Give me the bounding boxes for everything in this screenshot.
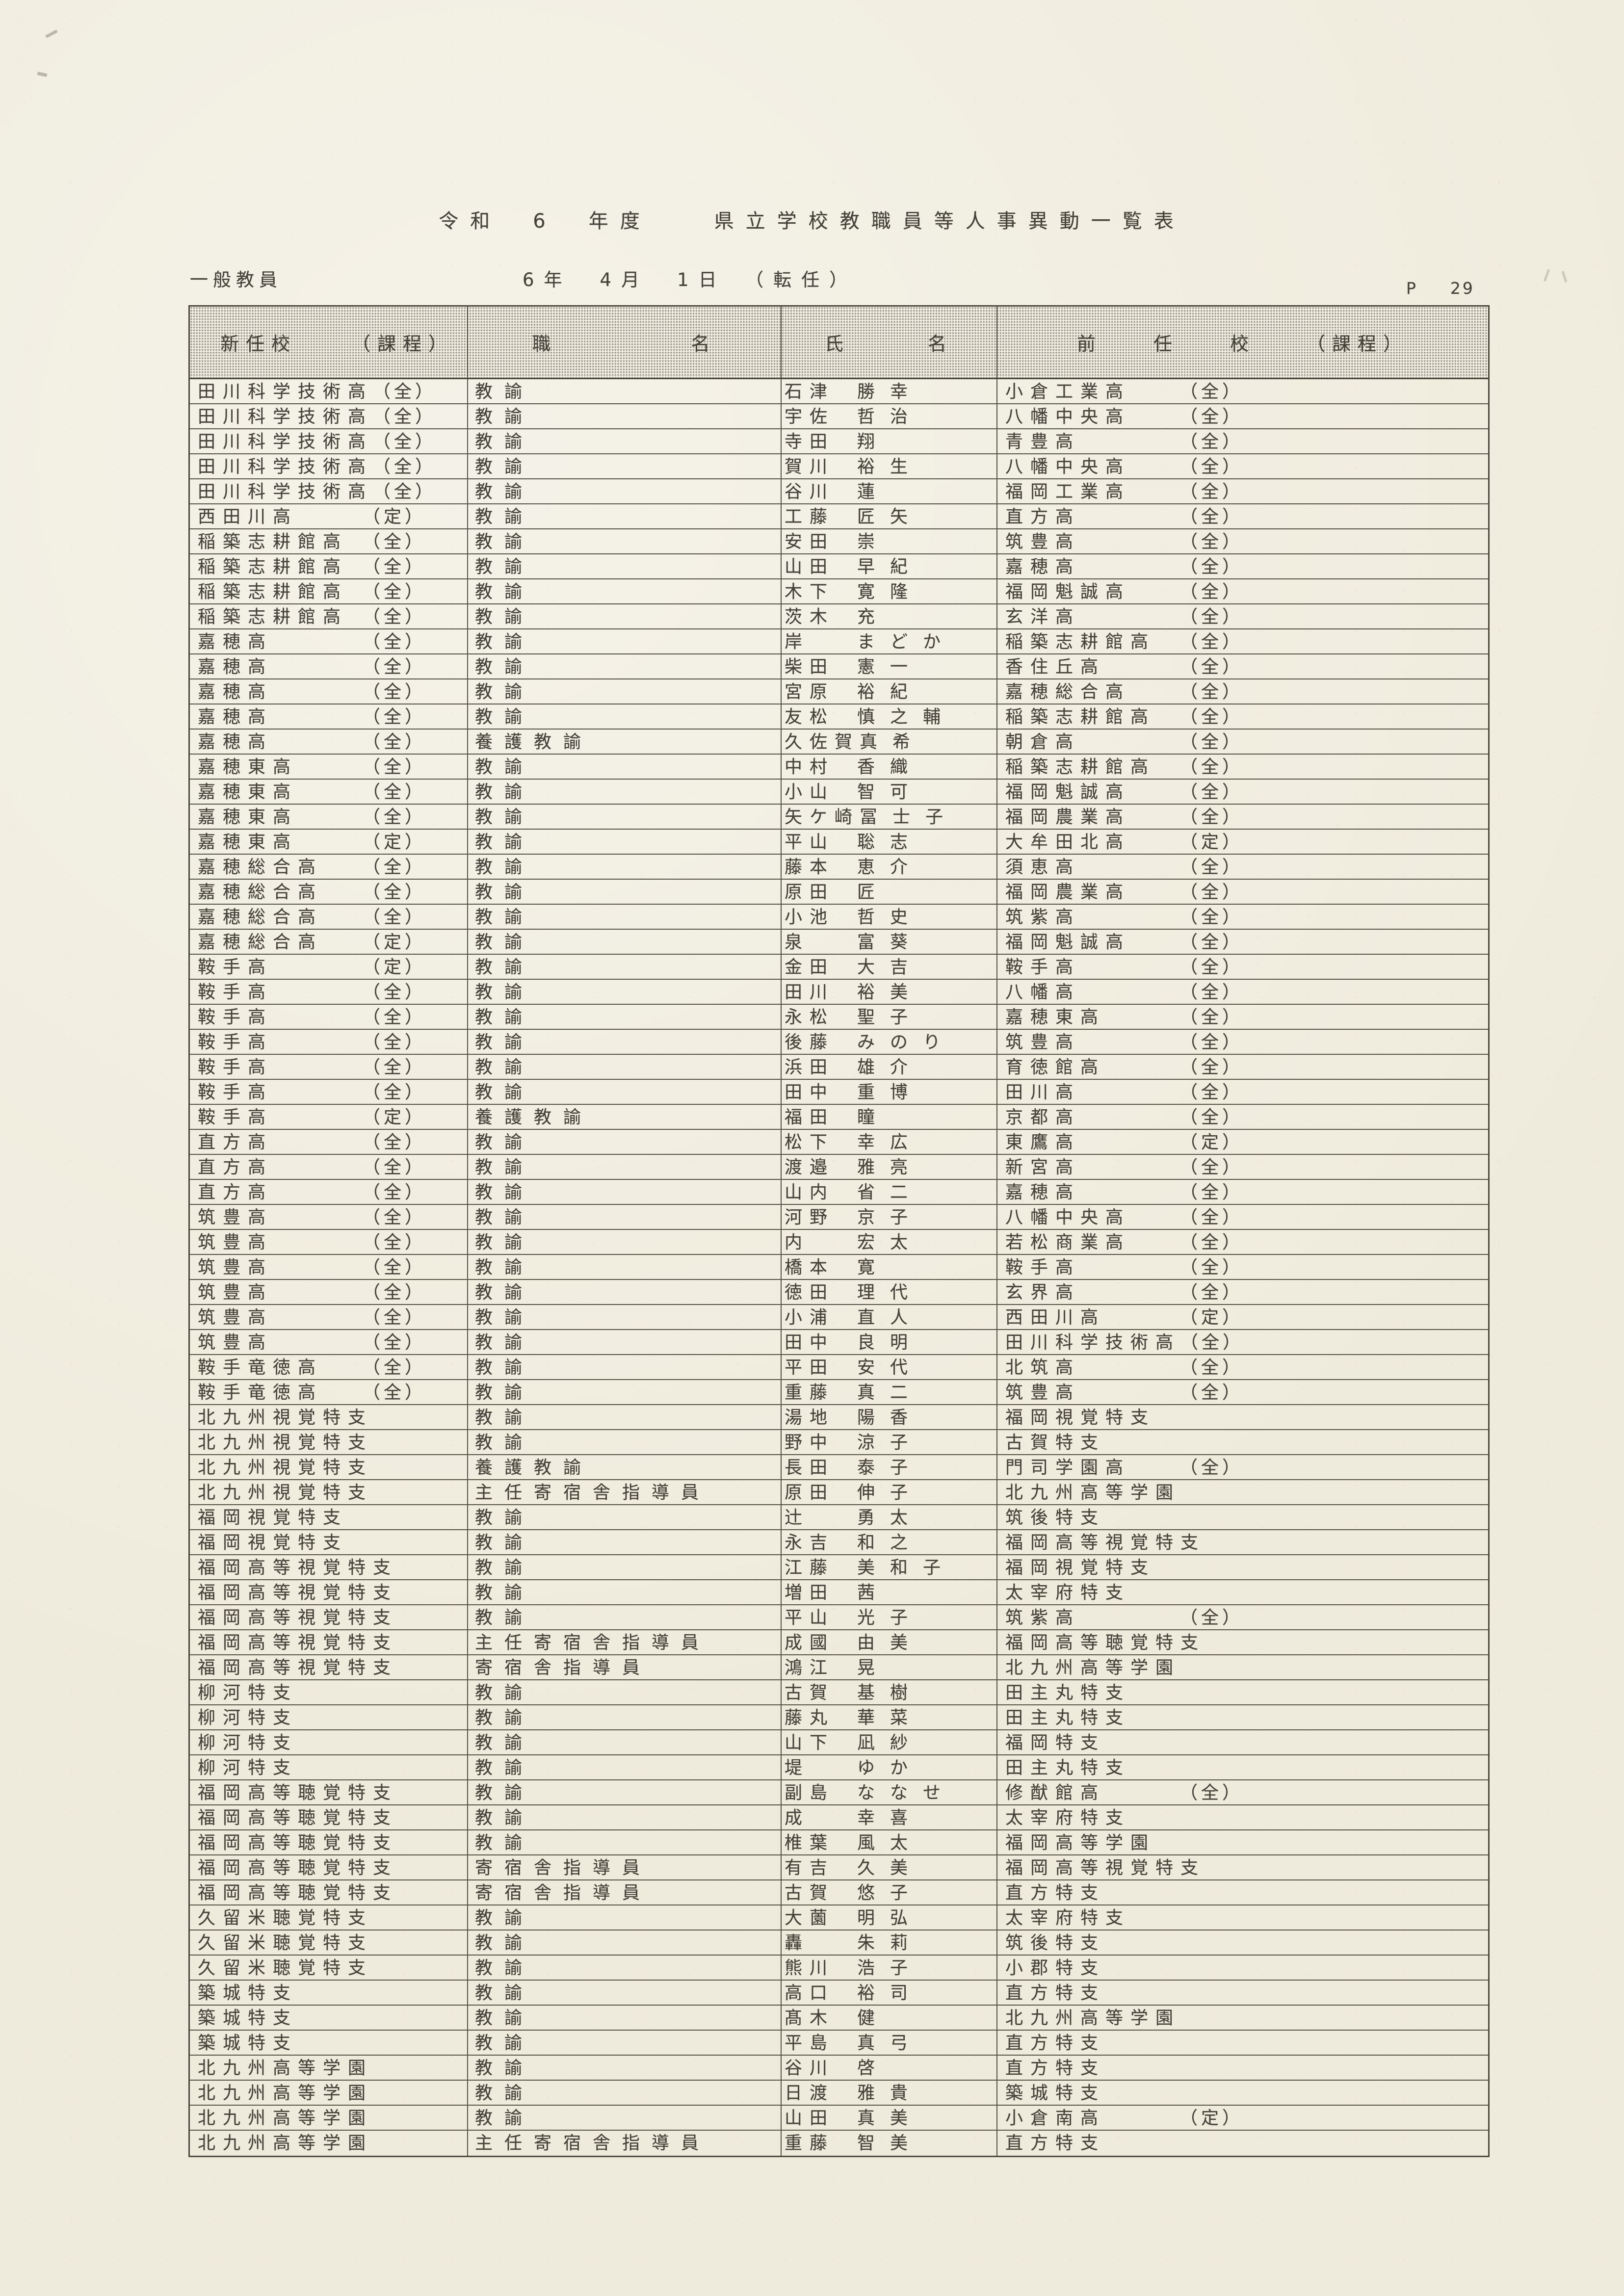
cell-position: 教諭 — [468, 1255, 782, 1280]
cell-prev-school: 福岡高等聴覚特支 — [997, 1630, 1488, 1655]
cell-name: 古賀基樹 — [782, 1680, 997, 1705]
cell-prev-school: 筑後特支 — [997, 1931, 1488, 1956]
prev-school-course: （全） — [1180, 955, 1243, 980]
name-family: 山下 — [785, 1730, 857, 1755]
prev-school-course: （全） — [1180, 529, 1243, 554]
new-school-text: 北九州視覚特支 — [198, 1405, 373, 1430]
prev-school-course: （全） — [1180, 1180, 1243, 1205]
name-family: 小山 — [785, 780, 857, 805]
prev-school-text: 筑紫高 — [1005, 1605, 1180, 1630]
cell-new-school: 福岡高等聴覚特支 — [190, 1780, 468, 1805]
name-given: 茜 — [857, 1580, 890, 1605]
new-school-text: 築城特支 — [198, 2006, 363, 2031]
prev-school-text: 太宰府特支 — [1005, 1580, 1180, 1605]
page-title: 令和 6 年度 県立学校教職員等人事異動一覧表 — [0, 205, 1624, 234]
cell-new-school: 嘉穂東高（定） — [190, 830, 468, 855]
header-name: 氏 名 — [782, 307, 997, 378]
new-school-text: 嘉穂東高 — [198, 805, 363, 830]
name-given: 直人 — [857, 1305, 923, 1330]
prev-school-course: （全） — [1180, 679, 1243, 704]
table-row: 嘉穂東高（全）教諭中村香織稲築志耕館高（全） — [190, 755, 1488, 780]
cell-position: 教諭 — [468, 780, 782, 805]
prev-school-text: 北九州高等学園 — [1005, 1480, 1180, 1505]
new-school-text: 直方高 — [198, 1180, 363, 1205]
name-family: 湯地 — [785, 1405, 857, 1430]
header-name-char1: 氏 — [825, 329, 850, 356]
prev-school-text: 門司学園高 — [1005, 1455, 1180, 1480]
cell-position: 教諭 — [468, 2106, 782, 2131]
cell-new-school: 稲築志耕館高（全） — [190, 554, 468, 579]
new-school-text: 田川科学技術高 — [198, 379, 373, 404]
cell-new-school: 柳河特支 — [190, 1730, 468, 1755]
prev-school-text: 東鷹高 — [1005, 1130, 1180, 1155]
cell-prev-school: 田川科学技術高（全） — [997, 1330, 1488, 1355]
cell-prev-school: 福岡視覚特支 — [997, 1405, 1488, 1430]
prev-school-text: 新宮高 — [1005, 1155, 1180, 1180]
new-school-text: 筑豊高 — [198, 1330, 363, 1355]
cell-name: 古賀悠子 — [782, 1880, 997, 1905]
cell-name: 谷川蓮 — [782, 479, 997, 504]
table-row: 嘉穂総合高（全）教諭小池哲史筑紫高（全） — [190, 905, 1488, 930]
prev-school-course: （全） — [1180, 429, 1243, 454]
new-school-text: 久留米聴覚特支 — [198, 1956, 373, 1981]
name-given: まどか — [857, 629, 956, 654]
name-family: 松下 — [785, 1130, 857, 1155]
cell-name: 原田伸子 — [782, 1480, 997, 1505]
cell-position: 教諭 — [468, 2006, 782, 2031]
cell-prev-school: 嘉穂高（全） — [997, 554, 1488, 579]
cell-position: 教諭 — [468, 2031, 782, 2056]
name-family: 平山 — [785, 1605, 857, 1630]
table-row: 福岡高等視覚特支教諭平山光子筑紫高（全） — [190, 1605, 1488, 1630]
cell-prev-school: 田主丸特支 — [997, 1705, 1488, 1730]
name-given: 明弘 — [857, 1905, 923, 1931]
prev-school-text: 鞍手高 — [1005, 955, 1180, 980]
table-row: 鞍手高（全）教諭永松聖子嘉穂東高（全） — [190, 1005, 1488, 1030]
prev-school-text: 稲築志耕館高 — [1005, 704, 1180, 730]
prev-school-text: 田川高 — [1005, 1080, 1180, 1105]
prev-school-text: 嘉穂総合高 — [1005, 679, 1180, 704]
name-family: 副島 — [785, 1780, 857, 1805]
prev-school-text: 筑豊高 — [1005, 529, 1180, 554]
cell-new-school: 筑豊高（全） — [190, 1230, 468, 1255]
cell-prev-school: 田主丸特支 — [997, 1755, 1488, 1780]
cell-name: 宮原裕紀 — [782, 679, 997, 704]
cell-position: 養護教諭 — [468, 730, 782, 755]
prev-school-text: 嘉穂高 — [1005, 554, 1180, 579]
prev-school-text: 北九州高等学園 — [1005, 1655, 1180, 1680]
cell-position: 教諭 — [468, 1505, 782, 1530]
cell-name: 徳田理代 — [782, 1280, 997, 1305]
new-school-course: （全） — [363, 755, 426, 780]
new-school-text: 田川科学技術高 — [198, 454, 373, 479]
prev-school-text: 筑後特支 — [1005, 1505, 1180, 1530]
name-family: 永吉 — [785, 1530, 857, 1555]
name-given: 聖子 — [857, 1005, 923, 1030]
cell-name: 平山聡志 — [782, 830, 997, 855]
new-school-course: （全） — [363, 1080, 426, 1105]
new-school-text: 福岡高等聴覚特支 — [198, 1880, 398, 1905]
cell-prev-school: 古賀特支 — [997, 1430, 1488, 1455]
name-family: 田中 — [785, 1080, 857, 1105]
new-school-course: （全） — [363, 554, 426, 579]
cell-prev-school: 八幡中央高（全） — [997, 454, 1488, 479]
cell-new-school: 福岡高等視覚特支 — [190, 1655, 468, 1680]
cell-new-school: 嘉穂高（全） — [190, 704, 468, 730]
prev-school-text: 福岡魁誠高 — [1005, 930, 1180, 955]
prev-school-course: （全） — [1180, 629, 1243, 654]
cell-new-school: 久留米聴覚特支 — [190, 1905, 468, 1931]
new-school-course: （全） — [373, 379, 436, 404]
cell-new-school: 筑豊高（全） — [190, 1205, 468, 1230]
header-new-school-label: 新任校 — [220, 329, 297, 356]
prev-school-text: 香住丘高 — [1005, 654, 1180, 679]
cell-new-school: 鞍手竜徳高（全） — [190, 1355, 468, 1380]
cell-new-school: 福岡高等聴覚特支 — [190, 1855, 468, 1880]
prev-school-course: （全） — [1180, 880, 1243, 905]
cell-name: 藤本恵介 — [782, 855, 997, 880]
cell-new-school: 西田川高（定） — [190, 504, 468, 529]
prev-school-course: （全） — [1180, 504, 1243, 529]
prev-school-text: 嘉穂高 — [1005, 1180, 1180, 1205]
name-family: 田中 — [785, 1330, 857, 1355]
new-school-course: （全） — [363, 780, 426, 805]
table-row: 稲築志耕館高（全）教諭茨木充玄洋高（全） — [190, 604, 1488, 629]
prev-school-course: （定） — [1180, 1130, 1243, 1155]
cell-new-school: 築城特支 — [190, 2031, 468, 2056]
cell-prev-school: 直方高（全） — [997, 504, 1488, 529]
header-name-char2: 名 — [928, 329, 953, 356]
table-row: 嘉穂高（全）養護教諭久佐賀真希朝倉高（全） — [190, 730, 1488, 755]
prev-school-text: 古賀特支 — [1005, 1430, 1180, 1455]
new-school-text: 築城特支 — [198, 2031, 363, 2056]
name-given: 真弓 — [857, 2031, 923, 2056]
prev-school-course: （全） — [1180, 604, 1243, 629]
new-school-text: 筑豊高 — [198, 1255, 363, 1280]
cell-new-school: 嘉穂総合高（全） — [190, 905, 468, 930]
new-school-course: （全） — [363, 1280, 426, 1305]
name-given: 勝幸 — [857, 379, 923, 404]
cell-name: 矢ケ崎冨士子 — [782, 805, 997, 830]
cell-new-school: 稲築志耕館高（全） — [190, 579, 468, 604]
table-row: 鞍手高（全）教諭後藤みのり筑豊高（全） — [190, 1030, 1488, 1055]
new-school-text: 嘉穂高 — [198, 704, 363, 730]
cell-new-school: 鞍手高（全） — [190, 1030, 468, 1055]
prev-school-text: 玄界高 — [1005, 1280, 1180, 1305]
name-given: 泰子 — [857, 1455, 923, 1480]
cell-position: 教諭 — [468, 1230, 782, 1255]
cell-new-school: 筑豊高（全） — [190, 1330, 468, 1355]
header-prev-school-course: （課程） — [1307, 329, 1409, 356]
header-position-char2: 名 — [691, 329, 717, 356]
new-school-course: （全） — [363, 704, 426, 730]
name-given: 風太 — [857, 1830, 923, 1855]
scan-artifact — [1561, 271, 1567, 283]
new-school-course: （全） — [363, 730, 426, 755]
table-row: 北九州高等学園教諭山田真美小倉南高（定） — [190, 2106, 1488, 2131]
new-school-text: 西田川高 — [198, 504, 363, 529]
name-given: 早紀 — [857, 554, 923, 579]
name-given: 寛 — [857, 1255, 890, 1280]
name-given: 真希 — [860, 730, 925, 755]
new-school-text: 嘉穂高 — [198, 629, 363, 654]
new-school-text: 鞍手高 — [198, 1080, 363, 1105]
name-given: 良明 — [857, 1330, 923, 1355]
table-row: 福岡高等視覚特支寄宿舎指導員鴻江晃北九州高等学園 — [190, 1655, 1488, 1680]
prev-school-course: （全） — [1180, 1330, 1244, 1355]
prev-school-course: （全） — [1180, 1105, 1243, 1130]
cell-new-school: 鞍手竜徳高（全） — [190, 1380, 468, 1405]
cell-new-school: 福岡高等視覚特支 — [190, 1555, 468, 1580]
cell-prev-school: 福岡魁誠高（全） — [997, 579, 1488, 604]
table-row: 嘉穂東高（全）教諭矢ケ崎冨士子福岡農業高（全） — [190, 805, 1488, 830]
cell-new-school: 築城特支 — [190, 2006, 468, 2031]
new-school-text: 福岡高等視覚特支 — [198, 1580, 398, 1605]
name-given: 裕司 — [857, 1981, 923, 2006]
cell-prev-school: 東鷹高（定） — [997, 1130, 1488, 1155]
name-family: 内 — [785, 1230, 857, 1255]
name-given: 憲一 — [857, 654, 923, 679]
prev-school-course: （全） — [1180, 1255, 1243, 1280]
name-given: 寛隆 — [857, 579, 923, 604]
cell-name: 有吉久美 — [782, 1855, 997, 1880]
cell-new-school: 福岡高等聴覚特支 — [190, 1830, 468, 1855]
prev-school-course: （全） — [1180, 1380, 1243, 1405]
name-given: 雅貴 — [857, 2081, 923, 2106]
prev-school-text: 築城特支 — [1005, 2081, 1180, 2106]
table-row: 福岡高等聴覚特支教諭椎葉風太福岡高等学園 — [190, 1830, 1488, 1855]
name-given: 哲治 — [857, 404, 923, 429]
prev-school-text: 福岡高等聴覚特支 — [1005, 1630, 1205, 1655]
date-label: 6年 4月 1日 （転任） — [523, 265, 857, 291]
cell-position: 主任寄宿舎指導員 — [468, 1480, 782, 1505]
name-family: 原田 — [785, 880, 857, 905]
new-school-text: 筑豊高 — [198, 1305, 363, 1330]
new-school-course: （全） — [363, 1355, 426, 1380]
new-school-course: （全） — [363, 1330, 426, 1355]
cell-new-school: 鞍手高（定） — [190, 955, 468, 980]
cell-position: 教諭 — [468, 1030, 782, 1055]
prev-school-course: （全） — [1180, 930, 1243, 955]
table-row: 久留米聴覚特支教諭轟朱莉筑後特支 — [190, 1931, 1488, 1956]
name-family: 木下 — [785, 579, 857, 604]
cell-name: 山下凪紗 — [782, 1730, 997, 1755]
cell-position: 教諭 — [468, 404, 782, 429]
name-given: 華菜 — [857, 1705, 923, 1730]
cell-name: 河野京子 — [782, 1205, 997, 1230]
page-number-label: P — [1406, 279, 1418, 298]
cell-prev-school: 直方特支 — [997, 2031, 1488, 2056]
new-school-text: 北九州高等学園 — [198, 2106, 373, 2131]
prev-school-course: （全） — [1180, 980, 1243, 1005]
table-row: 北九州高等学園教諭谷川啓直方特支 — [190, 2056, 1488, 2081]
name-family: 平島 — [785, 2031, 857, 2056]
cell-name: 平山光子 — [782, 1605, 997, 1630]
prev-school-text: 田主丸特支 — [1005, 1680, 1180, 1705]
prev-school-course: （全） — [1180, 755, 1243, 780]
table-row: 北九州高等学園教諭日渡雅貴築城特支 — [190, 2081, 1488, 2106]
prev-school-course: （全） — [1180, 579, 1243, 604]
prev-school-text: 若松商業高 — [1005, 1230, 1180, 1255]
cell-new-school: 福岡高等視覚特支 — [190, 1580, 468, 1605]
cell-prev-school: 直方特支 — [997, 2131, 1488, 2156]
new-school-course: （全） — [363, 529, 426, 554]
cell-prev-school: 田主丸特支 — [997, 1680, 1488, 1705]
prev-school-text: 福岡視覚特支 — [1005, 1555, 1180, 1580]
prev-school-text: 嘉穂東高 — [1005, 1005, 1180, 1030]
table-row: 柳河特支教諭堤ゆか田主丸特支 — [190, 1755, 1488, 1780]
new-school-course: （全） — [373, 429, 436, 454]
name-given: 恵介 — [857, 855, 923, 880]
table-row: 北九州視覚特支教諭湯地陽香福岡視覚特支 — [190, 1405, 1488, 1430]
cell-name: 松下幸広 — [782, 1130, 997, 1155]
name-family: 橋本 — [785, 1255, 857, 1280]
new-school-text: 嘉穂高 — [198, 654, 363, 679]
cell-prev-school: 育徳館高（全） — [997, 1055, 1488, 1080]
new-school-text: 北九州視覚特支 — [198, 1455, 373, 1480]
prev-school-course: （全） — [1180, 1605, 1243, 1630]
name-family: 泉 — [785, 930, 857, 955]
cell-prev-school: 北九州高等学園 — [997, 1480, 1488, 1505]
new-school-text: 福岡高等視覚特支 — [198, 1555, 398, 1580]
prev-school-text: 稲築志耕館高 — [1005, 629, 1180, 654]
prev-school-text: 大牟田北高 — [1005, 830, 1180, 855]
cell-name: 田中良明 — [782, 1330, 997, 1355]
new-school-text: 鞍手高 — [198, 1055, 363, 1080]
new-school-text: 久留米聴覚特支 — [198, 1905, 373, 1931]
cell-prev-school: 福岡視覚特支 — [997, 1555, 1488, 1580]
new-school-text: 鞍手高 — [198, 1105, 363, 1130]
prev-school-course: （全） — [1180, 1280, 1243, 1305]
cell-new-school: 福岡視覚特支 — [190, 1505, 468, 1530]
name-given: 安代 — [857, 1355, 923, 1380]
cell-name: 原田匠 — [782, 880, 997, 905]
name-family: 藤本 — [785, 855, 857, 880]
cell-prev-school: 小倉工業高（全） — [997, 379, 1488, 404]
cell-position: 教諭 — [468, 1380, 782, 1405]
cell-prev-school: 太宰府特支 — [997, 1905, 1488, 1931]
new-school-course: （全） — [363, 1130, 426, 1155]
new-school-course: （全） — [363, 905, 426, 930]
prev-school-text: 田川科学技術高 — [1005, 1330, 1180, 1355]
prev-school-text: 太宰府特支 — [1005, 1805, 1180, 1830]
new-school-text: 鞍手竜徳高 — [198, 1355, 363, 1380]
name-given: 悠子 — [857, 1880, 923, 1905]
name-given: 伸子 — [857, 1480, 923, 1505]
table-row: 福岡高等聴覚特支教諭成幸喜太宰府特支 — [190, 1805, 1488, 1830]
prev-school-course: （全） — [1180, 805, 1243, 830]
prev-school-course: （全） — [1180, 1005, 1243, 1030]
cell-new-school: 築城特支 — [190, 1981, 468, 2006]
prev-school-text: 福岡高等視覚特支 — [1005, 1855, 1205, 1880]
prev-school-course: （全） — [1180, 1080, 1243, 1105]
name-given: 香織 — [857, 755, 923, 780]
cell-prev-school: 福岡農業高（全） — [997, 880, 1488, 905]
cell-prev-school: 筑後特支 — [997, 1505, 1488, 1530]
cell-new-school: 直方高（全） — [190, 1130, 468, 1155]
prev-school-course: （全） — [1180, 1230, 1243, 1255]
cell-position: 教諭 — [468, 1830, 782, 1855]
cell-name: 椎葉風太 — [782, 1830, 997, 1855]
new-school-text: 筑豊高 — [198, 1205, 363, 1230]
name-family: 永松 — [785, 1005, 857, 1030]
cell-new-school: 北九州高等学園 — [190, 2081, 468, 2106]
prev-school-text: 筑豊高 — [1005, 1380, 1180, 1405]
new-school-text: 柳河特支 — [198, 1680, 363, 1705]
cell-prev-school: 香住丘高（全） — [997, 654, 1488, 679]
cell-name: 熊川浩子 — [782, 1956, 997, 1981]
cell-prev-school: 若松商業高（全） — [997, 1230, 1488, 1255]
cell-position: 教諭 — [468, 1755, 782, 1780]
prev-school-text: 小倉南高 — [1005, 2106, 1180, 2131]
name-family: 熊川 — [785, 1956, 857, 1981]
cell-prev-school: 北九州高等学園 — [997, 2006, 1488, 2031]
cell-new-school: 福岡高等視覚特支 — [190, 1605, 468, 1630]
cell-prev-school: 鞍手高（全） — [997, 955, 1488, 980]
name-family: 野中 — [785, 1430, 857, 1455]
new-school-text: 嘉穂総合高 — [198, 855, 363, 880]
name-given: 冨士子 — [860, 805, 958, 830]
cell-position: 教諭 — [468, 1005, 782, 1030]
cell-new-school: 筑豊高（全） — [190, 1255, 468, 1280]
header-prev-school: 前 任 校 （課程） — [997, 307, 1488, 378]
prev-school-course: （全） — [1180, 1780, 1243, 1805]
name-family: 成國 — [785, 1630, 857, 1655]
new-school-text: 筑豊高 — [198, 1230, 363, 1255]
table-row: 稲築志耕館高（全）教諭山田早紀嘉穂高（全） — [190, 554, 1488, 579]
cell-position: 教諭 — [468, 1155, 782, 1180]
cell-new-school: 直方高（全） — [190, 1155, 468, 1180]
cell-position: 教諭 — [468, 1805, 782, 1830]
cell-name: 重藤智美 — [782, 2131, 997, 2156]
new-school-text: 福岡視覚特支 — [198, 1530, 363, 1555]
new-school-text: 福岡高等聴覚特支 — [198, 1830, 398, 1855]
new-school-course: （全） — [363, 1255, 426, 1280]
name-given: 朱莉 — [857, 1931, 923, 1956]
name-family: 金田 — [785, 955, 857, 980]
cell-name: 木下寛隆 — [782, 579, 997, 604]
name-given: 裕美 — [857, 980, 923, 1005]
cell-prev-school: 筑紫高（全） — [997, 905, 1488, 930]
prev-school-text: 八幡中央高 — [1005, 404, 1180, 429]
cell-new-school: 北九州高等学園 — [190, 2056, 468, 2081]
name-given: 久美 — [857, 1855, 923, 1880]
new-school-text: 福岡視覚特支 — [198, 1505, 363, 1530]
name-given: 宏太 — [857, 1230, 923, 1255]
table-row: 嘉穂総合高（全）教諭原田匠福岡農業高（全） — [190, 880, 1488, 905]
cell-position: 教諭 — [468, 1055, 782, 1080]
cell-new-school: 福岡高等聴覚特支 — [190, 1880, 468, 1905]
cell-name: 山田早紀 — [782, 554, 997, 579]
cell-new-school: 久留米聴覚特支 — [190, 1931, 468, 1956]
name-given: みのり — [857, 1030, 956, 1055]
name-family: 有吉 — [785, 1855, 857, 1880]
table-body: 田川科学技術高（全）教諭石津勝幸小倉工業高（全）田川科学技術高（全）教諭宇佐哲治… — [190, 379, 1488, 2156]
table-row: 築城特支教諭平島真弓直方特支 — [190, 2031, 1488, 2056]
cell-position: 教諭 — [468, 1530, 782, 1555]
cell-new-school: 田川科学技術高（全） — [190, 454, 468, 479]
cell-new-school: 直方高（全） — [190, 1180, 468, 1205]
cell-new-school: 嘉穂高（全） — [190, 730, 468, 755]
cell-name: 日渡雅貴 — [782, 2081, 997, 2106]
cell-prev-school: 太宰府特支 — [997, 1580, 1488, 1605]
new-school-text: 嘉穂東高 — [198, 780, 363, 805]
name-family: 中村 — [785, 755, 857, 780]
new-school-text: 築城特支 — [198, 1981, 363, 2006]
new-school-text: 北九州視覚特支 — [198, 1430, 373, 1455]
name-given: 陽香 — [857, 1405, 923, 1430]
cell-name: 浜田雄介 — [782, 1055, 997, 1080]
